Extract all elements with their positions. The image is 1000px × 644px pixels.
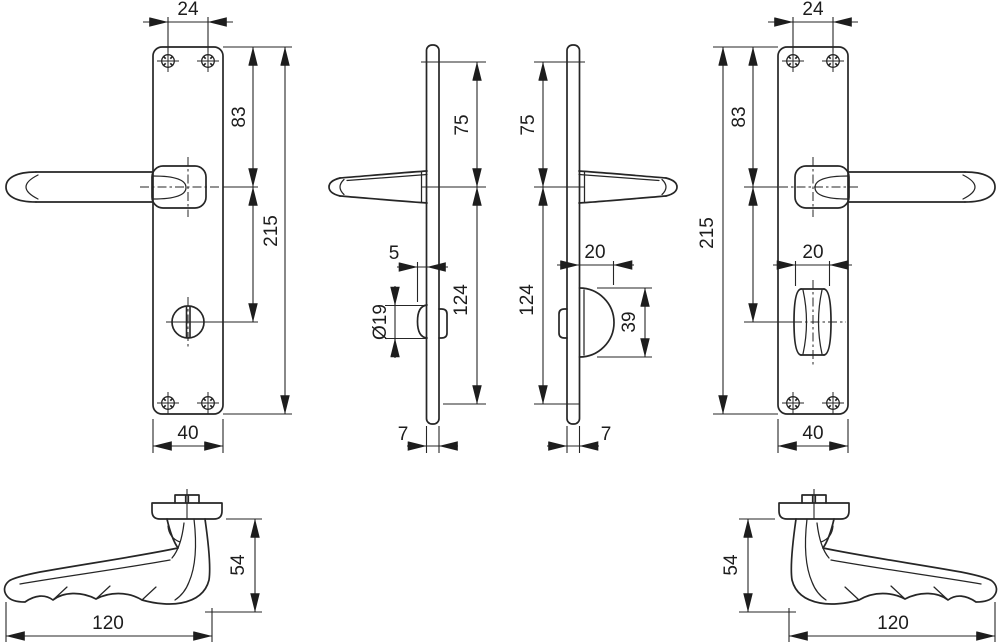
dim-label: 124 (451, 284, 472, 316)
dimension-handle-height: 54 (205, 519, 262, 612)
side-view-right: 75 124 20 39 7 (517, 45, 677, 453)
side-view-left: 75 124 5 Ø19 7 (329, 45, 486, 453)
screw-hole-icon (782, 50, 804, 72)
dim-label: 83 (729, 106, 750, 127)
back-boss-profile (559, 309, 567, 338)
dimension-vertical-left-view: 83 215 (223, 47, 292, 414)
wc-turn-knob-profile (580, 288, 615, 357)
dim-label: Ø19 (370, 304, 391, 340)
dimension-plate-width: 40 (778, 419, 848, 453)
dimension-vertical-side-left: 75 124 (421, 62, 486, 404)
screw-hole-icon (157, 50, 179, 72)
dim-label: 83 (229, 106, 250, 127)
dim-label: 24 (177, 0, 199, 20)
lever-handle-profile (579, 171, 677, 203)
wc-release-hole (166, 297, 258, 347)
screw-hole-icon (822, 50, 844, 72)
wc-turn-knob-front (744, 280, 846, 365)
dim-label: 75 (452, 114, 473, 135)
lever-grip-outline (791, 519, 996, 604)
dimension-turn-width: 20 (773, 242, 852, 286)
lever-top-view-right: 54 120 (721, 489, 996, 642)
dimension-vertical-side-right: 75 124 (517, 62, 585, 404)
screw-hole-icon (197, 50, 219, 72)
dimension-plate-thickness-right: 7 (547, 424, 611, 453)
dimension-plate-width: 40 (153, 419, 223, 453)
screw-hole-icon (157, 392, 179, 414)
front-view-left: 24 83 215 40 (6, 0, 292, 453)
lever-handle (795, 166, 995, 208)
screw-hole-icon (197, 392, 219, 414)
dim-label: 120 (92, 613, 124, 634)
dimension-handle-length: 120 (6, 602, 212, 642)
dim-label: 20 (584, 242, 605, 263)
lever-top-view-left: 54 120 (5, 489, 262, 642)
dimension-vertical-right-view: 83 215 (697, 47, 778, 414)
dim-label: 54 (721, 554, 742, 576)
wc-release-knob-profile (418, 305, 428, 338)
screw-hole-icon (822, 392, 844, 414)
dim-label: 124 (517, 284, 538, 316)
dimension-handle-length: 120 (789, 602, 995, 642)
front-view-right: 24 83 215 20 40 (697, 0, 995, 453)
dim-label: 20 (802, 242, 823, 263)
door-handle-technical-drawing: 24 83 215 40 (0, 0, 1000, 644)
dim-label: 54 (228, 554, 249, 576)
dim-label: 215 (697, 217, 718, 249)
dimension-screw-spacing: 24 (143, 0, 233, 52)
dim-label: 24 (802, 0, 824, 20)
lever-handle-profile (329, 171, 427, 203)
technical-drawing-page: 24 83 215 40 (0, 0, 1000, 644)
backplate-outline (153, 47, 223, 414)
dim-label: 215 (261, 215, 282, 247)
dim-label: 39 (619, 311, 640, 332)
dim-label: 7 (398, 424, 409, 445)
screw-hole-icon (782, 392, 804, 414)
dimension-screw-spacing: 24 (768, 0, 858, 52)
dimension-handle-height: 54 (721, 519, 796, 612)
backplate-profile (567, 45, 580, 424)
back-boss-profile (439, 309, 447, 338)
dim-label: 40 (177, 423, 198, 444)
dimension-knob-diameter: Ø19 (370, 286, 427, 358)
dim-label: 120 (877, 613, 909, 634)
dimension-plate-thickness-left: 7 (398, 424, 458, 453)
dimension-turn-protrusion: 20 (557, 242, 634, 285)
backplate-profile (427, 45, 440, 424)
dim-label: 5 (389, 243, 400, 264)
dim-label: 40 (802, 423, 823, 444)
dim-label: 75 (518, 114, 539, 135)
lever-grip-outline (5, 519, 210, 604)
dim-label: 7 (601, 424, 612, 445)
